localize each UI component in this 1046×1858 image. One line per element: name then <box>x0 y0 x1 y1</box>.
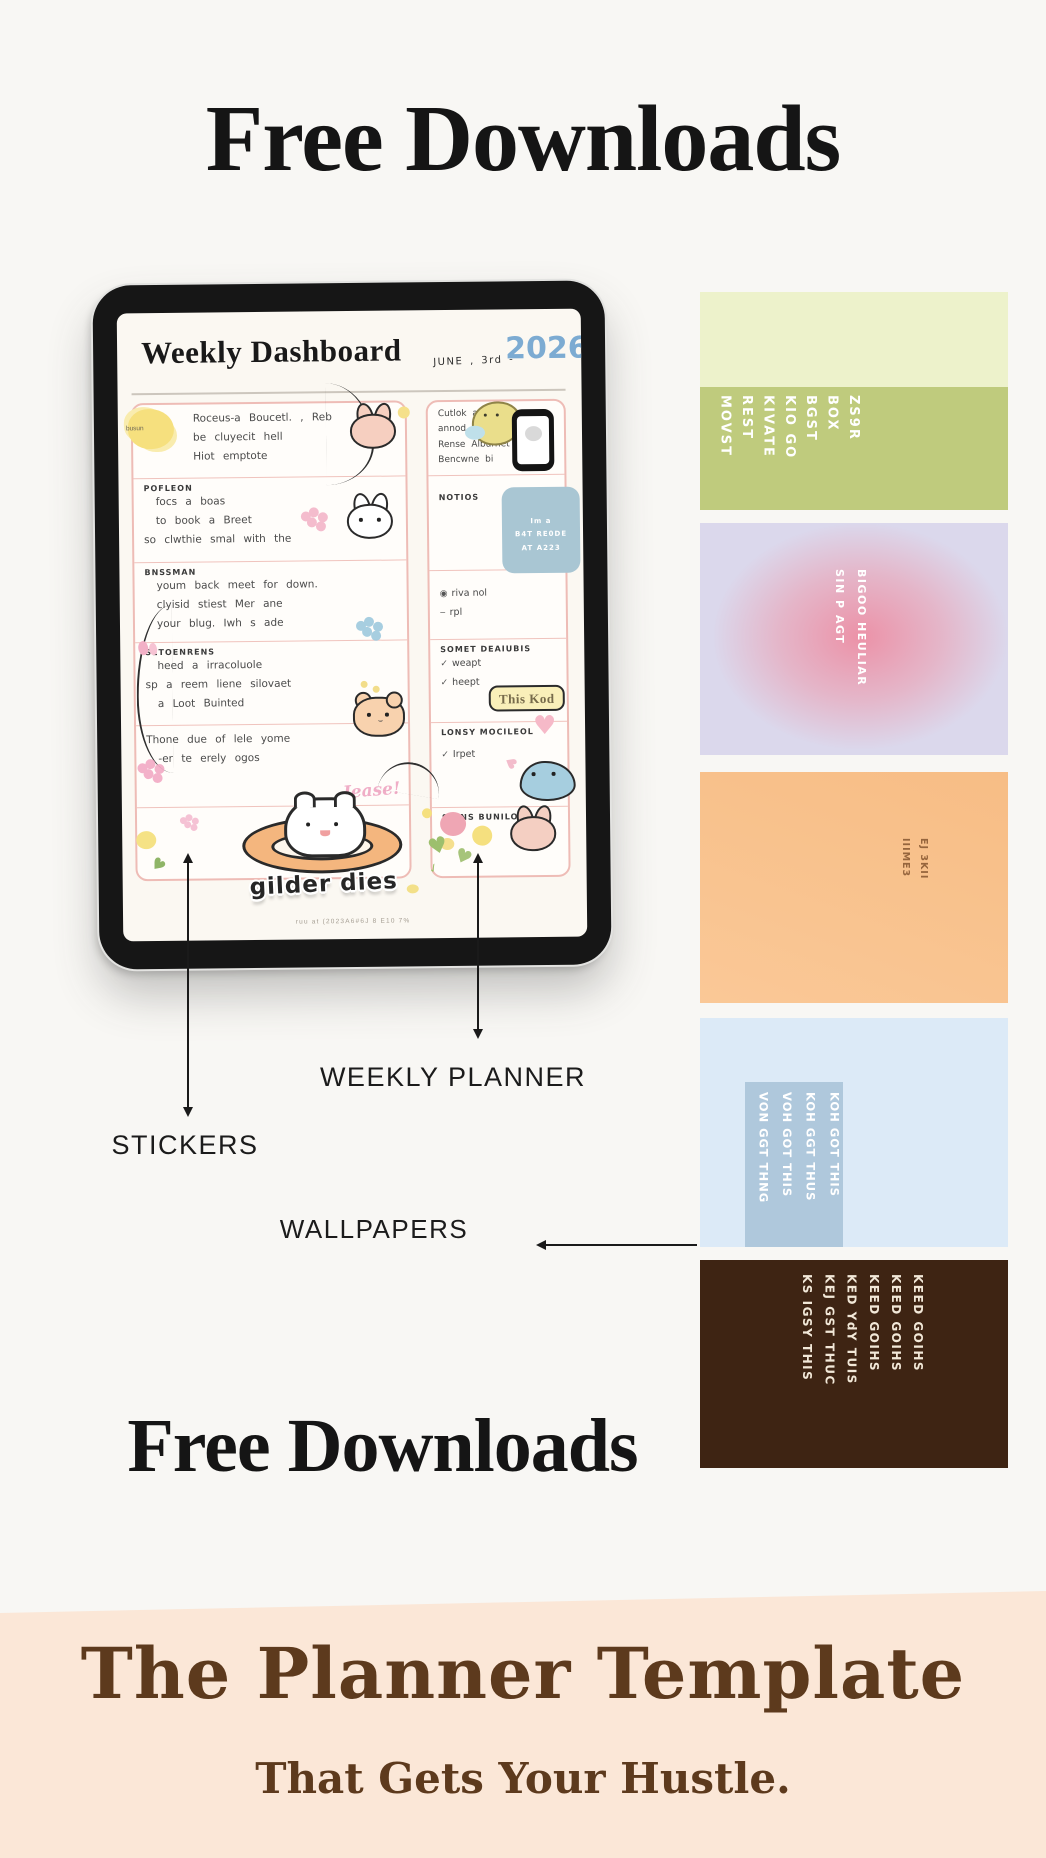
brown-wallpaper-quote: KEED GOIHS KEED GOIHS KEED GOIHS KED YdY… <box>796 1274 929 1456</box>
yellow-dot-icon <box>422 808 432 818</box>
check-icon: ✓ <box>440 659 448 669</box>
blue-quote-panel: KOH GOT THIS KOH GGT THUS VOH GOT THIS V… <box>745 1082 843 1247</box>
planner-date: JUNE , 3rd - <box>433 354 514 368</box>
tablet-mockup: Weekly Dashboard JUNE , 3rd - 2026 Roceu… <box>92 280 611 969</box>
check-icon: ✓ <box>441 678 449 688</box>
yellow-dots-icon <box>361 681 368 688</box>
footer-banner: The Planner Template That Gets Your Hust… <box>0 1588 1046 1858</box>
promo-graphic: Free Downloads Weekly Dashboard JUNE , 3… <box>0 0 1046 1858</box>
yellow-flower-icon <box>472 826 492 846</box>
green-wallpaper-quote: ZS9R BOX BGST KIO GO KIVATE REST MOVST <box>714 395 864 505</box>
planner-title: Weekly Dashboard <box>141 332 402 371</box>
footer-title: The Planner Template <box>0 1632 1046 1715</box>
footer-subtitle: That Gets Your Hustle. <box>0 1754 1046 1803</box>
top-title: Free Downloads <box>0 92 1046 186</box>
pink-cloud-icon <box>309 507 319 517</box>
pink-flower-icon <box>185 814 192 821</box>
weekly-planner-label: WEEKLY PLANNER <box>303 1062 603 1093</box>
blue-wallpaper-quote: KOH GOT THIS KOH GGT THUS VOH GOT THIS V… <box>751 1092 845 1237</box>
wallpapers-label: WALLPAPERS <box>249 1214 499 1245</box>
tablet-screen: Weekly Dashboard JUNE , 3rd - 2026 Roceu… <box>117 309 588 942</box>
stickers-label: STICKERS <box>85 1130 285 1161</box>
this-kod-badge: This Kod <box>489 685 565 712</box>
planner-section: Bnssman youm back meet for down. clyisid… <box>134 560 407 643</box>
pink-heart-icon: ♥ <box>533 713 557 739</box>
bunny-sticker-icon <box>510 805 558 852</box>
lavender-wallpaper-quote: BIGOO HEULIAR SIN P AGT <box>828 569 872 714</box>
planner-section: ◉riva nol ‒rpl <box>429 570 566 640</box>
weekly-planner-arrow <box>477 862 479 1030</box>
wallpaper-swatch-blue: KOH GOT THIS KOH GGT THUS VOH GOT THIS V… <box>700 1018 1008 1247</box>
pink-flower-icon <box>145 759 155 769</box>
wallpapers-arrow <box>545 1244 697 1246</box>
fine-print: ruu at (2023A6#6J 8 E10 7% <box>193 916 513 926</box>
wallpaper-swatch-green: ZS9R BOX BGST KIO GO KIVATE REST MOVST <box>700 292 1008 510</box>
bottom-title: Free Downloads <box>60 1408 705 1484</box>
green-swatch-light-half <box>700 292 1008 387</box>
target-icon: ◉ <box>440 589 448 599</box>
planner-year: 2026 <box>505 331 587 367</box>
bunny-sticker-icon <box>350 403 398 450</box>
sun-label: busun <box>126 425 144 432</box>
check-icon: ✓ <box>441 750 449 760</box>
stickers-arrow <box>187 862 189 1108</box>
blue-flower-icon <box>364 617 374 627</box>
wallpaper-swatch-brown: KEED GOIHS KEED GOIHS KEED GOIHS KED YdY… <box>700 1260 1008 1468</box>
planner-left-column: Roceus-a Boucetl. , Reb be cluyecit hell… <box>131 400 412 881</box>
bear-sticker-icon <box>353 696 405 737</box>
dash-icon: ‒ <box>440 608 446 618</box>
bunny-sticker-icon <box>347 493 395 540</box>
yellow-blob-icon <box>136 831 156 849</box>
orange-wallpaper-quote: EJ 3KII IIIME3 <box>896 838 932 943</box>
green-swatch-dark-half: ZS9R BOX BGST KIO GO KIVATE REST MOVST <box>700 387 1008 510</box>
phone-sticker-icon <box>512 409 555 471</box>
cat-sticker-icon <box>284 797 367 858</box>
yellow-dot-icon <box>398 406 410 418</box>
wallpaper-swatch-orange: EJ 3KII IIIME3 <box>700 772 1008 1003</box>
blue-sticky-note: Im a B4T RE0DE AT A223 <box>502 487 581 574</box>
sun-sticker-icon: busun <box>128 409 174 449</box>
wallpaper-swatch-lavender: BIGOO HEULIAR SIN P AGT <box>700 523 1008 755</box>
